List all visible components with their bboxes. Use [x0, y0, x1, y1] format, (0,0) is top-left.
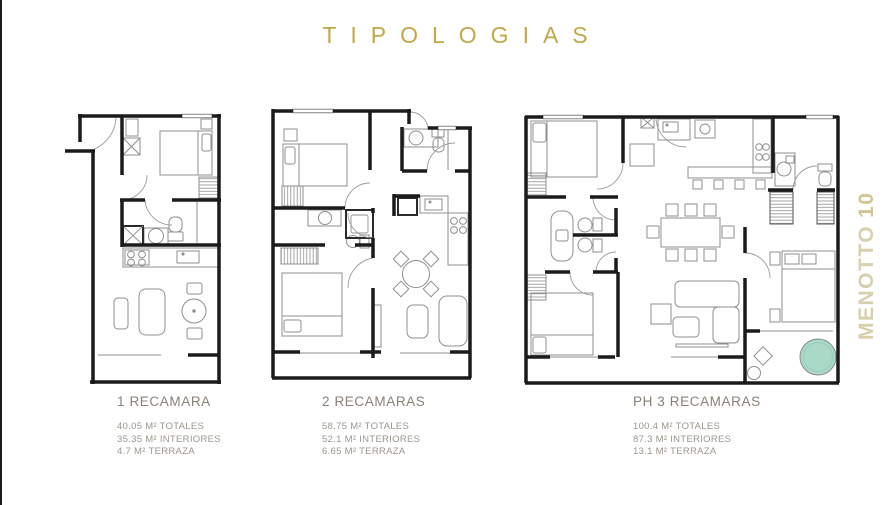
window-icon — [806, 115, 833, 119]
furniture-layer — [98, 119, 219, 355]
closet-hatch-icon — [527, 173, 546, 196]
area-interiores: 87.3 M² INTERIORES — [633, 434, 761, 447]
closet-hatch-icon — [281, 248, 318, 264]
area-totales: 58.75 M² TOTALES — [322, 421, 425, 434]
kitchen-counter-icon — [123, 248, 219, 267]
brand-name: MENOTTO — [855, 225, 878, 340]
typology-label-3: PH 3 RECAMARAS 100.4 M² TOTALES 87.3 M² … — [633, 394, 761, 459]
chair-icon — [685, 249, 697, 261]
closet-hatch-icon — [199, 177, 219, 198]
armchair-icon — [114, 298, 128, 329]
floorplan-1-recamara — [65, 113, 225, 385]
nightstand-icon — [284, 129, 297, 141]
vanity-icon — [308, 210, 341, 226]
pillow-icon — [285, 147, 295, 164]
window-icon — [182, 114, 212, 118]
entry-door-arc-icon — [80, 116, 116, 152]
floorplan-2-drawing — [270, 108, 473, 384]
sink-icon — [409, 131, 423, 145]
page-title: TIPOLOGIAS — [0, 22, 896, 49]
ottoman-icon — [673, 317, 699, 337]
bed-icon — [531, 121, 597, 177]
typology-name: 1 RECAMARA — [117, 394, 221, 409]
area-terraza: 4.7 M² TERRAZA — [117, 446, 221, 459]
area-terraza: 13.1 M² TERRAZA — [633, 446, 761, 459]
wardrobe-icon — [126, 119, 138, 136]
bed-icon — [531, 293, 593, 355]
bedroom-door-arc-icon — [570, 272, 593, 295]
chair-icon — [187, 328, 202, 339]
pillow-icon — [533, 123, 546, 142]
area-totales: 100.4 M² TOTALES — [633, 421, 761, 434]
toilet-tank-icon — [818, 164, 832, 171]
chair-icon — [666, 204, 678, 216]
armchair-icon — [407, 305, 428, 338]
toilet-bowl-icon — [578, 218, 592, 232]
brand-number: 10 — [855, 192, 878, 218]
bath-door-arc-icon — [145, 200, 172, 225]
bath-door-arc-icon — [596, 252, 616, 272]
kitchen-sink-icon — [177, 251, 199, 263]
bath-door-arc-icon — [348, 213, 373, 238]
stool-icon — [756, 180, 765, 189]
typology-label-2: 2 RECAMARAS 58.75 M² TOTALES 52.1 M² INT… — [322, 394, 425, 459]
chair-icon — [666, 249, 678, 261]
window-icon — [293, 109, 333, 113]
sofa-icon — [139, 289, 165, 335]
bedroom-door-arc-icon — [597, 163, 623, 189]
storage-icon — [630, 144, 654, 166]
toilet-bowl-icon — [169, 217, 182, 232]
floorplan-1-drawing — [65, 113, 225, 385]
side-table-icon — [651, 304, 671, 324]
floorplan-2-recamaras — [270, 108, 473, 384]
entry-door-arc-icon — [410, 112, 428, 130]
chair-icon — [647, 226, 659, 238]
area-terraza: 6.65 M² TERRAZA — [322, 446, 425, 459]
sofa-icon — [675, 281, 739, 307]
bed-icon — [782, 251, 835, 322]
area-totales: 40.05 M² TOTALES — [117, 421, 221, 434]
nightstand-icon — [201, 119, 212, 129]
typologies-sheet: TIPOLOGIAS — [0, 0, 896, 505]
round-table-icon — [403, 261, 430, 288]
tv-console-icon — [374, 305, 381, 347]
window-icon — [438, 126, 456, 130]
area-interiores: 35.35 M² INTERIORES — [117, 434, 221, 447]
nightstand-icon — [770, 252, 780, 265]
chair-icon — [704, 204, 716, 216]
sofa-icon — [439, 296, 467, 346]
chair-icon — [704, 249, 716, 261]
floorplan-ph-3-recamaras — [523, 113, 841, 385]
area-interiores: 52.1 M² INTERIORES — [322, 434, 425, 447]
toilet-bowl-icon — [819, 172, 831, 186]
terrace-table-icon — [754, 347, 772, 365]
pillow-icon — [785, 254, 799, 264]
nightstand-icon — [770, 309, 780, 322]
pillow-icon — [802, 254, 816, 264]
stool-icon — [735, 180, 744, 189]
sink-icon — [777, 162, 791, 176]
toilet-tank-icon — [593, 218, 602, 231]
jacuzzi-icon — [800, 339, 836, 375]
closet-hatch-icon — [817, 192, 834, 224]
floorplan-3-drawing — [523, 113, 841, 385]
washer-icon — [398, 198, 417, 215]
pillow-icon — [284, 320, 301, 332]
bath-door-arc-icon — [593, 197, 616, 220]
bedroom-door-arc-icon — [348, 258, 373, 288]
toilet-tank-icon — [593, 239, 602, 252]
window-icon — [543, 115, 583, 119]
bathtub-icon — [551, 211, 573, 261]
left-page-edge — [0, 0, 2, 505]
bath-door-arc-icon — [793, 166, 817, 190]
dining-table-icon — [661, 218, 720, 247]
typology-name: PH 3 RECAMARAS — [633, 394, 761, 409]
terrace-chair-icon — [748, 367, 761, 380]
toilet-bowl-icon — [578, 238, 592, 252]
sofa-icon — [713, 307, 739, 343]
bed-icon — [283, 144, 347, 186]
chair-icon — [685, 204, 697, 216]
closet-hatch-icon — [282, 186, 303, 206]
typology-name: 2 RECAMARAS — [322, 394, 425, 409]
pillow-icon — [533, 337, 546, 353]
bed-icon — [160, 131, 212, 175]
pillow-icon — [202, 134, 211, 151]
bedroom-door-arc-icon — [122, 175, 147, 200]
washer-icon — [123, 226, 143, 245]
closet-hatch-icon — [527, 275, 546, 300]
sink-icon — [149, 229, 164, 244]
bed-icon — [282, 273, 342, 336]
typology-label-1: 1 RECAMARA 40.05 M² TOTALES 35.35 M² INT… — [117, 394, 221, 459]
furniture-layer — [527, 117, 835, 380]
sink-icon — [319, 212, 332, 225]
chair-icon — [722, 226, 734, 238]
chair-icon — [187, 283, 202, 294]
brand-watermark: MENOTTO10 — [855, 200, 881, 340]
stool-icon — [714, 180, 723, 189]
toilet-tank-icon — [168, 232, 183, 241]
vanity-icon — [775, 153, 795, 186]
walls-layer — [272, 109, 472, 378]
tv-console-icon — [676, 344, 728, 347]
stool-icon — [693, 180, 702, 189]
appliance-icon — [695, 120, 715, 138]
vanity-icon — [144, 228, 168, 245]
bedroom-door-arc-icon — [345, 183, 370, 208]
closet-hatch-icon — [770, 192, 793, 224]
bedroom-door-arc-icon — [745, 253, 770, 278]
